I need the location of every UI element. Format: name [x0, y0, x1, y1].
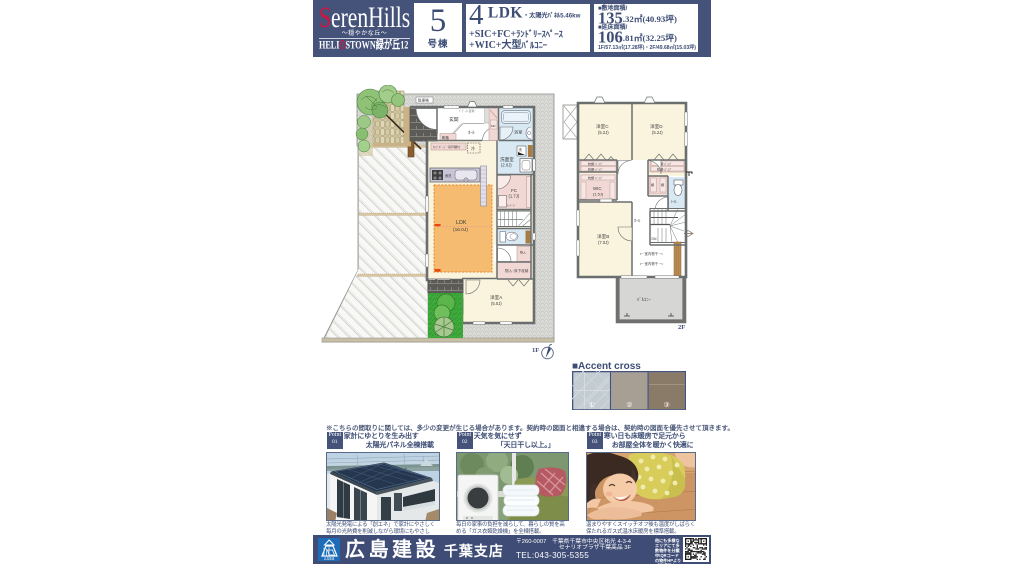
svg-text:食洗: 食洗: [445, 173, 452, 178]
svg-text:棚: 棚: [661, 182, 664, 187]
svg-text:浴室: 浴室: [514, 129, 522, 136]
svg-text:洋室B: 洋室B: [597, 233, 609, 240]
svg-text:(5.0J): (5.0J): [491, 301, 502, 306]
svg-text:物入･床下収納: 物入･床下収納: [505, 268, 529, 273]
svg-text:玄関: 玄関: [449, 116, 459, 123]
svg-text:ﾄｲﾚ: ﾄｲﾚ: [671, 199, 677, 204]
svg-text:枕棚･ﾊﾟｲﾌﾟ: 枕棚･ﾊﾟｲﾌﾟ: [588, 166, 603, 171]
svg-text:枕棚･ﾊﾟｲﾌﾟ: 枕棚･ﾊﾟｲﾌﾟ: [588, 161, 603, 166]
svg-text:(5.2J): (5.2J): [598, 130, 609, 135]
svg-text:洋室D: 洋室D: [650, 123, 663, 130]
svg-text:DN: DN: [652, 237, 657, 241]
svg-text:物入: 物入: [520, 250, 526, 255]
svg-text:ﾍﾞﾋﾞｰｶｰ置場: ﾍﾞﾋﾞｰｶｰ置場: [459, 109, 475, 113]
svg-text:駐車場: 駐車場: [418, 98, 429, 103]
svg-text:(2.0J): (2.0J): [501, 163, 512, 168]
svg-text:(16.0J): (16.0J): [453, 227, 468, 233]
svg-text:洋室A: 洋室A: [490, 294, 503, 301]
svg-text:FC: FC: [511, 188, 518, 193]
svg-text:SIC: SIC: [491, 124, 497, 128]
svg-text:1F: 1F: [532, 347, 539, 354]
svg-text:①: ①: [589, 401, 595, 409]
svg-text:枕棚･ﾊﾟｲﾌﾟ: 枕棚･ﾊﾟｲﾌﾟ: [588, 175, 603, 180]
svg-text:冷: 冷: [471, 145, 475, 151]
svg-text:(5.2J): (5.2J): [652, 130, 663, 135]
svg-text:(7.0J): (7.0J): [598, 240, 609, 245]
svg-text:2F: 2F: [678, 324, 685, 331]
svg-text:棚: 棚: [651, 182, 654, 187]
svg-text:ｶｯﾌﾟﾎﾞｰﾄﾞ･吊戸棚付: ｶｯﾌﾟﾎﾞｰﾄﾞ･吊戸棚付: [433, 144, 460, 149]
svg-text:ﾊﾞﾙｺﾆｰ: ﾊﾞﾙｺﾆｰ: [637, 296, 651, 302]
svg-text:ﾎｰﾙ: ﾎｰﾙ: [634, 218, 641, 223]
svg-text:靴箱: 靴箱: [442, 135, 449, 140]
svg-text:洋室C: 洋室C: [596, 123, 609, 130]
svg-text:③: ③: [664, 401, 670, 409]
svg-text:②: ②: [626, 401, 632, 409]
svg-text:(1.5J): (1.5J): [593, 192, 604, 197]
svg-text:ﾎｰﾙ: ﾎｰﾙ: [468, 130, 475, 135]
svg-text:WIC: WIC: [593, 186, 602, 191]
svg-text:広島建設: 広島建設: [324, 557, 335, 561]
svg-text:•─ 室内物干 ─•: •─ 室内物干 ─•: [640, 261, 663, 266]
svg-text:LDK: LDK: [456, 220, 467, 226]
svg-text:•─ 室内物干 ─•: •─ 室内物干 ─•: [640, 251, 663, 256]
svg-text:ﾗﾝﾄﾞﾘｰ: ﾗﾝﾄﾞﾘｰ: [507, 204, 516, 208]
svg-text:(1.7J): (1.7J): [509, 194, 520, 199]
